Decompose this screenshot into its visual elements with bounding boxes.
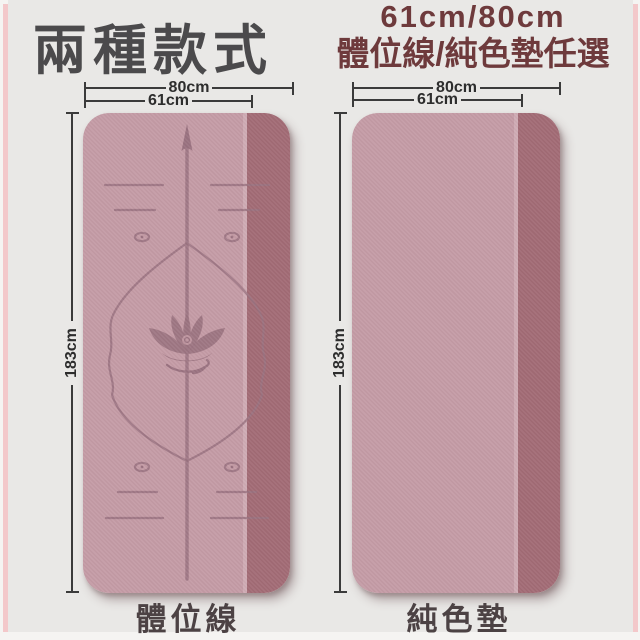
dim-line: [354, 99, 414, 101]
left-edge-accent: [3, 4, 8, 632]
dim-tick: [559, 82, 561, 95]
dim-line: [354, 87, 433, 89]
dim-line: [212, 87, 292, 89]
mat-seam-highlight: [514, 113, 518, 593]
dim-line: [86, 100, 145, 102]
header-subtitle: 61cm/80cm 體位線/純色墊任選: [310, 1, 636, 71]
marker-dot-center: [231, 466, 234, 469]
dim-line: [71, 385, 73, 592]
dim-length-left: 183cm: [65, 112, 79, 593]
alignment-line-mat-image: [83, 113, 290, 593]
dim-tick: [521, 94, 523, 107]
dim-line: [71, 114, 73, 321]
dim-line: [339, 385, 341, 592]
dim-line: [480, 87, 559, 89]
alignment-mat-caption: 體位線: [136, 594, 241, 639]
solid-mat-caption: 純色墊: [407, 594, 512, 639]
right-edge-accent: [633, 4, 638, 632]
mat-extra-width-strip: [518, 113, 560, 593]
dim-width-mat-left-label: 61cm: [145, 93, 192, 109]
dim-tick: [292, 82, 294, 95]
dim-length-right-label: 183cm: [332, 328, 348, 378]
alignment-mat-graphic: [83, 113, 290, 593]
dim-tick: [66, 591, 79, 593]
product-infographic: 兩種款式 61cm/80cm 體位線/純色墊任選 80cm 61cm 183cm…: [0, 0, 640, 640]
dim-tick: [334, 591, 347, 593]
marker-dot-center: [231, 236, 234, 239]
dim-line: [339, 114, 341, 321]
marker-dot-center: [141, 236, 144, 239]
dim-length-left-label: 183cm: [64, 328, 80, 378]
page-title: 兩種款式: [33, 6, 273, 85]
style-options-text: 體位線/純色墊任選: [310, 37, 636, 72]
dim-line: [461, 99, 521, 101]
dim-width-mat-right-label: 61cm: [414, 92, 461, 108]
dim-length-right: 183cm: [333, 112, 347, 593]
dim-width-mat-right: 61cm: [352, 93, 523, 107]
dim-line: [192, 100, 251, 102]
size-options-text: 61cm/80cm: [310, 1, 636, 34]
solid-mat-graphic: [352, 113, 560, 593]
marker-dot-center: [141, 466, 144, 469]
solid-color-mat-image: [352, 113, 560, 593]
dim-width-mat-left: 61cm: [84, 94, 253, 108]
dim-tick: [251, 95, 253, 108]
dim-line: [86, 87, 166, 89]
